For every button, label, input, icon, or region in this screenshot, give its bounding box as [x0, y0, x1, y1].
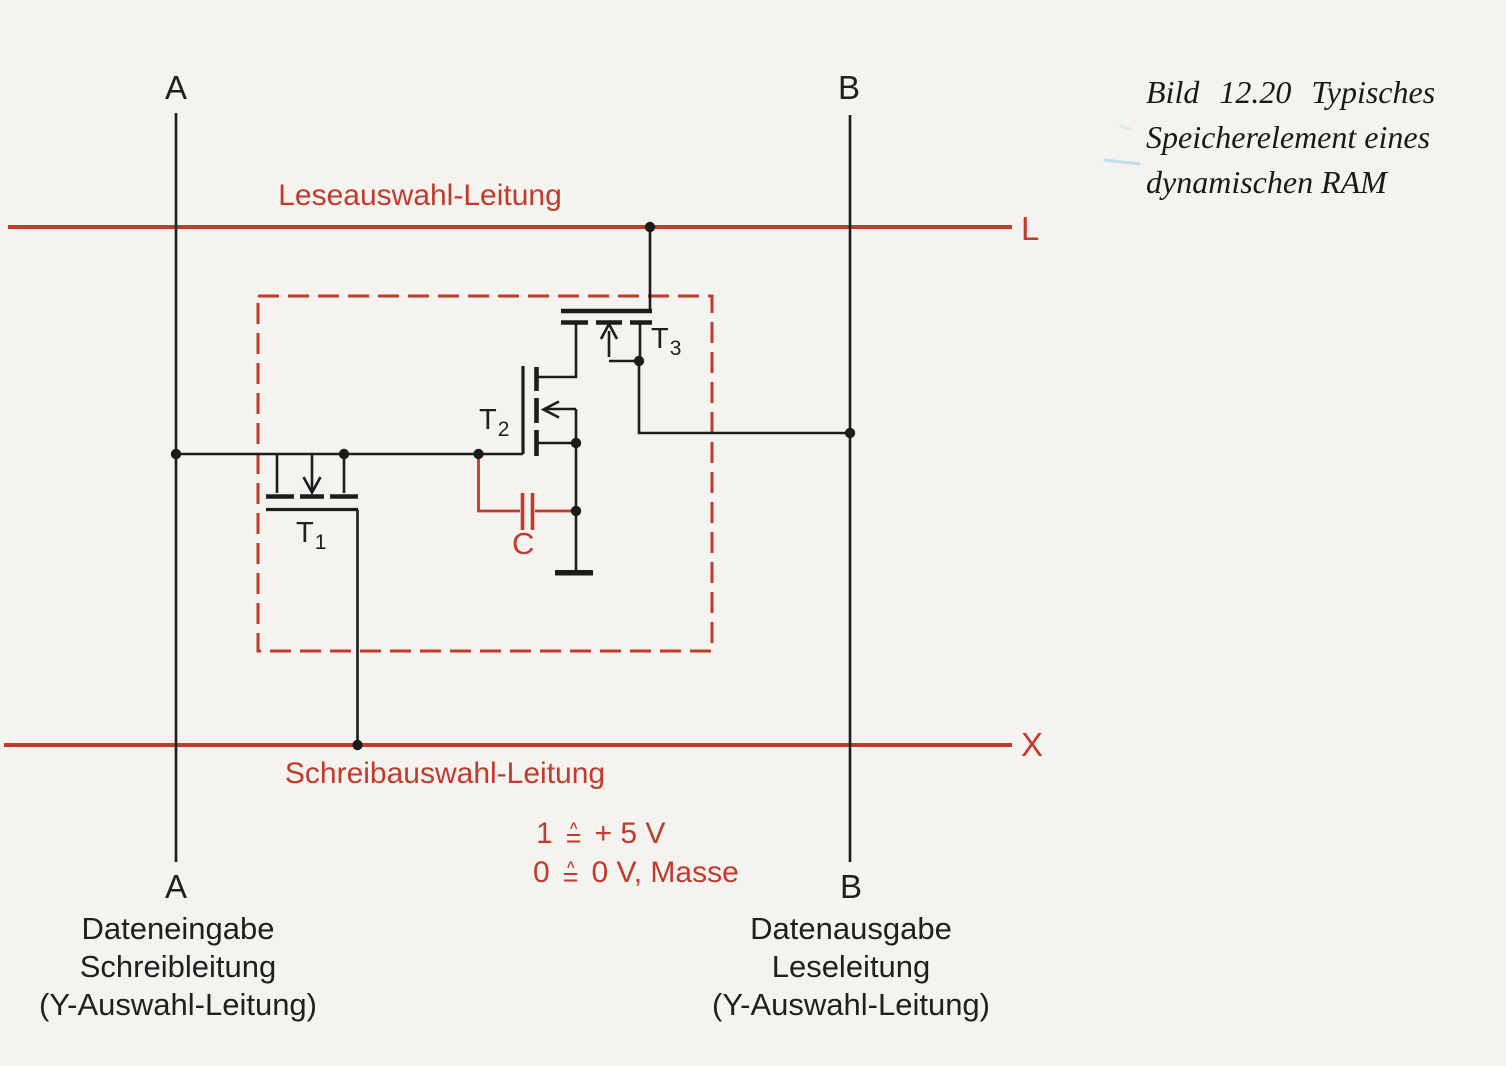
legend-one-voltage: + 5 V [594, 817, 665, 851]
t3-label-sub: 3 [670, 337, 683, 360]
junction-t1-drain [339, 449, 349, 459]
junction-t3-drain [634, 356, 644, 366]
capacitor-wire-left [479, 456, 521, 511]
terminal-a-bottom-label: A [165, 868, 187, 906]
write-select-label: Schreibauswahl-Leitung [285, 757, 605, 791]
junction-a-write [171, 449, 181, 459]
caption-line2: Speicherelement eines [1146, 115, 1435, 160]
ground-icon [555, 570, 593, 576]
t2-label: T2 [479, 404, 510, 442]
legend-logic-one: 1 ∧ = + 5 V [536, 817, 665, 851]
corresponds-icon: ∧ = [563, 859, 579, 887]
t3-to-b-wire [639, 361, 850, 433]
select-lines [4, 227, 1012, 745]
a-desc-line2: Schreibleitung [39, 948, 317, 986]
a-desc-line3: (Y-Auswahl-Leitung) [39, 986, 317, 1024]
t1-label: T1 [296, 517, 327, 555]
transistor-t3 [561, 311, 652, 361]
t1-label-sub: 1 [315, 531, 328, 554]
terminal-b-bottom-label: B [840, 868, 862, 906]
b-desc-line3: (Y-Auswahl-Leitung) [712, 986, 990, 1024]
write-select-terminal-label: X [1021, 726, 1043, 764]
t3-label-base: T [651, 323, 670, 355]
junction-storage-node [473, 449, 483, 459]
legend-zero-voltage: 0 V, Masse [591, 856, 738, 890]
junction-t2-source [571, 438, 581, 448]
legend-one-value: 1 [536, 817, 553, 851]
b-terminal-description: Datenausgabe Leseleitung (Y-Auswahl-Leit… [712, 910, 990, 1024]
t3-t2-link-wire [537, 323, 576, 377]
t2-label-sub: 2 [498, 418, 511, 441]
legend-zero-value: 0 [533, 856, 550, 890]
capacitor-label: C [512, 526, 534, 562]
storage-capacitor [479, 456, 577, 530]
terminal-a-top-label: A [165, 69, 187, 107]
a-desc-line1: Dateneingabe [39, 910, 317, 948]
junction-dots [171, 222, 855, 750]
a-terminal-description: Dateneingabe Schreibleitung (Y-Auswahl-L… [39, 910, 317, 1024]
b-desc-line1: Datenausgabe [712, 910, 990, 948]
read-select-label: Leseauswahl-Leitung [278, 179, 562, 213]
scan-artifact-marks [1104, 126, 1140, 164]
transistor-t2 [523, 366, 576, 456]
corresponds-icon: ∧ = [566, 820, 582, 848]
transistor-t1 [266, 454, 358, 510]
b-desc-line2: Leseleitung [712, 948, 990, 986]
junction-capacitor [571, 506, 581, 516]
dram-cell-schematic: A B Leseauswahl-Leitung L Schreibauswahl… [0, 0, 1506, 1066]
read-select-terminal-label: L [1021, 210, 1039, 248]
t2-label-base: T [479, 404, 498, 436]
junction-l-line [645, 222, 655, 232]
t1-label-base: T [296, 517, 315, 549]
terminal-b-top-label: B [838, 69, 860, 107]
cell-boundary-box [258, 296, 712, 651]
junction-x-line [352, 740, 362, 750]
legend-logic-zero: 0 ∧ = 0 V, Masse [533, 856, 739, 890]
caption-line1: Bild 12.20 Typisches [1146, 70, 1435, 115]
caption-line3: dynamischen RAM [1146, 160, 1435, 205]
t3-label: T3 [651, 323, 682, 361]
junction-b-line [845, 428, 855, 438]
figure-caption: Bild 12.20 Typisches Speicherelement ein… [1146, 70, 1435, 205]
